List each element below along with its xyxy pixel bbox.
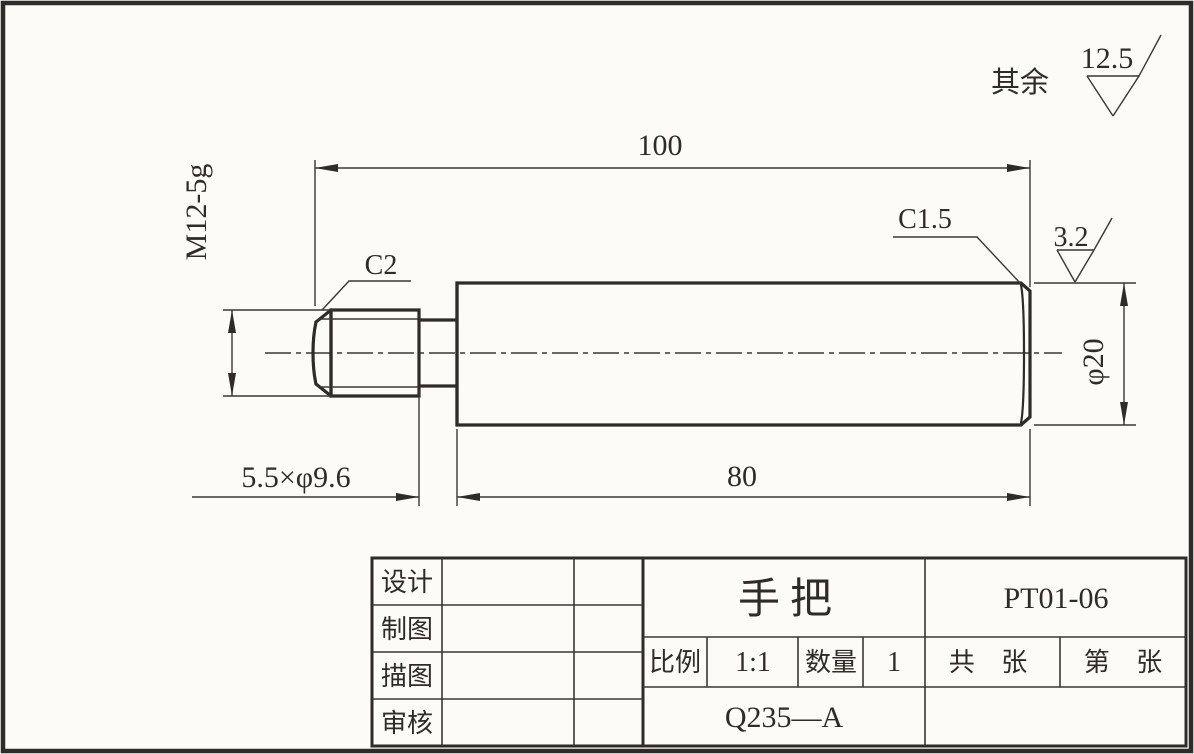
tb-label-drafted: 制图: [381, 615, 433, 644]
arrowhead: [1007, 164, 1030, 172]
thread-chamfer-top: [316, 310, 331, 322]
arrowhead: [1120, 283, 1128, 306]
tb-scale-value: 1:1: [735, 647, 771, 678]
drawing-border: [3, 3, 1191, 751]
dim-undercut: 5.5×φ9.6: [241, 461, 350, 494]
engineering-drawing: 100 80 5.5×φ9.6 M12-5g φ20 C2 C1.5 3.2 其…: [0, 0, 1194, 754]
tb-total-sheets-label: 共 张: [949, 648, 1038, 677]
chamfer-c1_5-label: C1.5: [898, 204, 952, 235]
title-block: 设计 制图 描图 审核 手把 PT01-06 比例 1:1 数量 1 共 张 第…: [372, 558, 1186, 746]
chamfer-c2-label: C2: [365, 250, 398, 281]
thread-chamfer-bottom: [316, 384, 331, 396]
dim-overall-length: 100: [638, 129, 683, 162]
tb-quantity-value: 1: [887, 647, 901, 678]
dim-body-length: 80: [727, 460, 757, 493]
arrowhead: [228, 310, 236, 333]
part-name: 手把: [738, 577, 842, 623]
roughness-symbol-general: 其余 12.5: [991, 35, 1161, 116]
arrowhead: [1120, 402, 1128, 425]
arrowhead: [396, 493, 419, 501]
roughness-general-value: 12.5: [1081, 42, 1134, 75]
arrowhead: [228, 373, 236, 396]
roughness-face-value: 3.2: [1054, 222, 1089, 253]
arrowhead: [457, 493, 480, 501]
part-view: [265, 283, 1062, 425]
tb-label-traced: 描图: [381, 662, 433, 691]
roughness-general-prefix: 其余: [991, 66, 1049, 99]
tb-quantity-label: 数量: [805, 648, 857, 677]
leader-c2: [322, 281, 411, 310]
dim-diameter: φ20: [1077, 338, 1110, 385]
tb-sheet-no-label: 第 张: [1084, 648, 1173, 677]
leader-c1_5: [893, 237, 1021, 284]
roughness-symbol-face: 3.2: [1054, 218, 1113, 282]
body-chamfer-edge: [1021, 285, 1024, 423]
dimension-lines: [192, 160, 1136, 506]
dim-thread-spec: M12-5g: [180, 164, 213, 261]
tb-label-design: 设计: [381, 568, 433, 597]
drawing-sheet: 100 80 5.5×φ9.6 M12-5g φ20 C2 C1.5 3.2 其…: [0, 0, 1194, 754]
tb-label-checked: 审核: [381, 709, 433, 738]
material: Q235—A: [725, 701, 844, 734]
arrowhead: [315, 164, 338, 172]
body-outline: [457, 283, 1030, 425]
arrowhead: [1007, 493, 1030, 501]
drawing-number: PT01-06: [1004, 582, 1109, 615]
tb-scale-label: 比例: [649, 648, 701, 677]
